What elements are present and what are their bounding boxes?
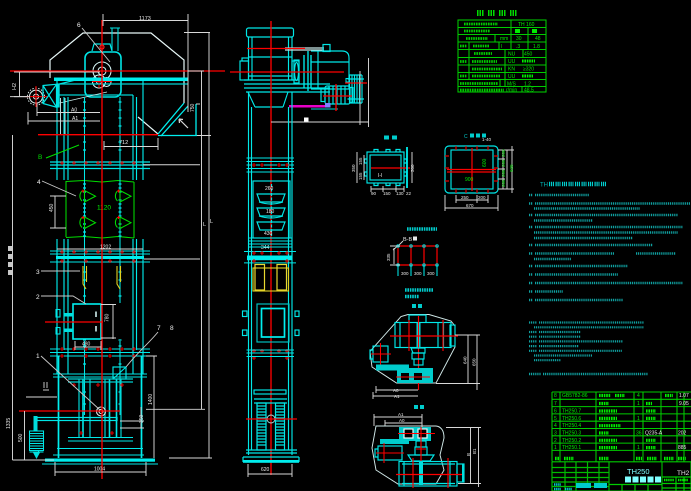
- svg-text:30: 30: [516, 36, 522, 42]
- svg-text:900: 900: [465, 177, 474, 183]
- svg-text:6: 6: [554, 409, 557, 415]
- svg-text:TH250.3: TH250.3: [562, 431, 581, 437]
- svg-text:260: 260: [265, 186, 274, 192]
- svg-text:TH250.7: TH250.7: [562, 409, 581, 415]
- svg-text:300: 300: [414, 271, 422, 276]
- svg-text:TH 160: TH 160: [518, 22, 535, 28]
- svg-text:NU: NU: [508, 52, 516, 58]
- svg-text:450: 450: [49, 203, 55, 212]
- svg-text:620: 620: [261, 467, 270, 473]
- svg-text:1400: 1400: [148, 394, 154, 405]
- svg-text:r/min: r/min: [506, 88, 517, 94]
- svg-text:920: 920: [509, 164, 514, 172]
- svg-text:300: 300: [427, 271, 435, 276]
- svg-text:7: 7: [157, 325, 161, 332]
- svg-text:4: 4: [37, 179, 41, 186]
- svg-text:Q235-A: Q235-A: [645, 431, 663, 437]
- svg-text:500: 500: [18, 433, 24, 442]
- svg-text:8: 8: [554, 393, 557, 399]
- svg-text:B-B: B-B: [403, 237, 413, 243]
- svg-text:650: 650: [472, 358, 477, 366]
- svg-text:UU: UU: [508, 74, 516, 80]
- svg-text:TH250.1: TH250.1: [562, 445, 581, 451]
- svg-text:.3: .3: [516, 44, 520, 50]
- svg-text:1: 1: [36, 353, 40, 360]
- svg-text:344: 344: [261, 245, 270, 251]
- svg-text:1: 1: [637, 445, 640, 451]
- svg-text:3: 3: [554, 431, 557, 437]
- svg-text:200: 200: [501, 159, 506, 167]
- svg-text:A1: A1: [72, 116, 78, 122]
- svg-text:335: 335: [386, 253, 391, 261]
- svg-text:1335: 1335: [6, 418, 12, 429]
- svg-text:155: 155: [358, 157, 363, 165]
- svg-text:480: 480: [82, 342, 91, 348]
- svg-text:UU: UU: [508, 59, 516, 65]
- svg-text:1-40: 1-40: [482, 137, 492, 142]
- svg-text:250: 250: [461, 195, 469, 200]
- svg-text:885: 885: [678, 445, 687, 451]
- svg-text:780: 780: [105, 313, 111, 322]
- svg-text:I-I: I-I: [378, 173, 382, 179]
- svg-text:712: 712: [119, 140, 128, 146]
- svg-text:TH250: TH250: [627, 467, 650, 476]
- svg-text:≥320: ≥320: [523, 67, 534, 73]
- svg-text:TH2: TH2: [677, 470, 690, 477]
- svg-text:8: 8: [170, 325, 174, 332]
- svg-text:430: 430: [264, 231, 273, 237]
- svg-text:130: 130: [396, 191, 404, 196]
- svg-text:4: 4: [637, 393, 640, 399]
- svg-text:1004: 1004: [94, 467, 105, 473]
- svg-text:300: 300: [401, 271, 409, 276]
- svg-text:5: 5: [554, 416, 557, 422]
- svg-text:TH250.4: TH250.4: [562, 423, 581, 429]
- svg-text:1120: 1120: [97, 205, 111, 212]
- svg-text:90: 90: [371, 191, 377, 196]
- svg-text:200: 200: [478, 195, 486, 200]
- svg-text:670: 670: [466, 203, 474, 208]
- svg-text:155: 155: [358, 172, 363, 180]
- svg-text:1.8: 1.8: [533, 44, 540, 50]
- svg-text:750: 750: [190, 103, 196, 112]
- svg-text:48.5: 48.5: [524, 88, 534, 94]
- svg-text:1: 1: [637, 401, 640, 407]
- svg-text:1173: 1173: [139, 16, 151, 22]
- svg-text:350: 350: [351, 164, 356, 172]
- svg-text:1: 1: [637, 416, 640, 422]
- svg-text:3: 3: [36, 269, 40, 276]
- svg-text:TH: TH: [540, 183, 548, 189]
- svg-text:2: 2: [36, 294, 40, 301]
- svg-text:9.05: 9.05: [679, 401, 689, 407]
- svg-text:600: 600: [482, 158, 488, 167]
- svg-text:150: 150: [383, 191, 391, 196]
- svg-text:TH250.2: TH250.2: [562, 438, 581, 444]
- svg-text:200: 200: [501, 149, 506, 157]
- svg-text:L: L: [210, 219, 213, 225]
- svg-text:L: L: [203, 222, 206, 228]
- svg-text:450: 450: [524, 52, 533, 58]
- svg-text:l: l: [501, 44, 502, 50]
- svg-text:A1: A1: [398, 412, 404, 417]
- svg-text:6: 6: [77, 22, 81, 29]
- svg-text:1: 1: [554, 445, 557, 451]
- svg-text:640: 640: [463, 356, 468, 364]
- svg-text:mm: mm: [500, 36, 508, 42]
- svg-text:B: B: [466, 453, 471, 456]
- svg-text:B: B: [38, 154, 42, 161]
- svg-text:2: 2: [554, 438, 557, 444]
- svg-text:GB5782-86: GB5782-86: [562, 393, 588, 399]
- svg-text:1.07: 1.07: [679, 393, 689, 399]
- svg-text:7: 7: [554, 401, 557, 407]
- svg-text:200: 200: [501, 169, 506, 177]
- svg-text:B1: B1: [472, 448, 477, 454]
- svg-text:TH250.6: TH250.6: [562, 416, 581, 422]
- svg-text:4: 4: [554, 423, 557, 429]
- svg-text:48: 48: [535, 36, 541, 42]
- svg-text:350: 350: [139, 414, 145, 423]
- svg-text:KN: KN: [508, 67, 515, 73]
- svg-text:202: 202: [678, 431, 687, 437]
- svg-text:A0: A0: [393, 388, 399, 393]
- svg-text:A0: A0: [399, 418, 405, 423]
- svg-text:22: 22: [406, 191, 412, 196]
- svg-text:A0: A0: [71, 108, 77, 114]
- svg-text:A1: A1: [394, 394, 400, 399]
- svg-text:180: 180: [266, 209, 275, 215]
- svg-text:200: 200: [501, 179, 506, 187]
- svg-text:H2: H2: [12, 83, 18, 90]
- svg-text:36: 36: [636, 431, 642, 437]
- svg-text:300: 300: [410, 164, 415, 172]
- svg-text:C: C: [464, 134, 468, 140]
- svg-text:1202: 1202: [100, 245, 111, 251]
